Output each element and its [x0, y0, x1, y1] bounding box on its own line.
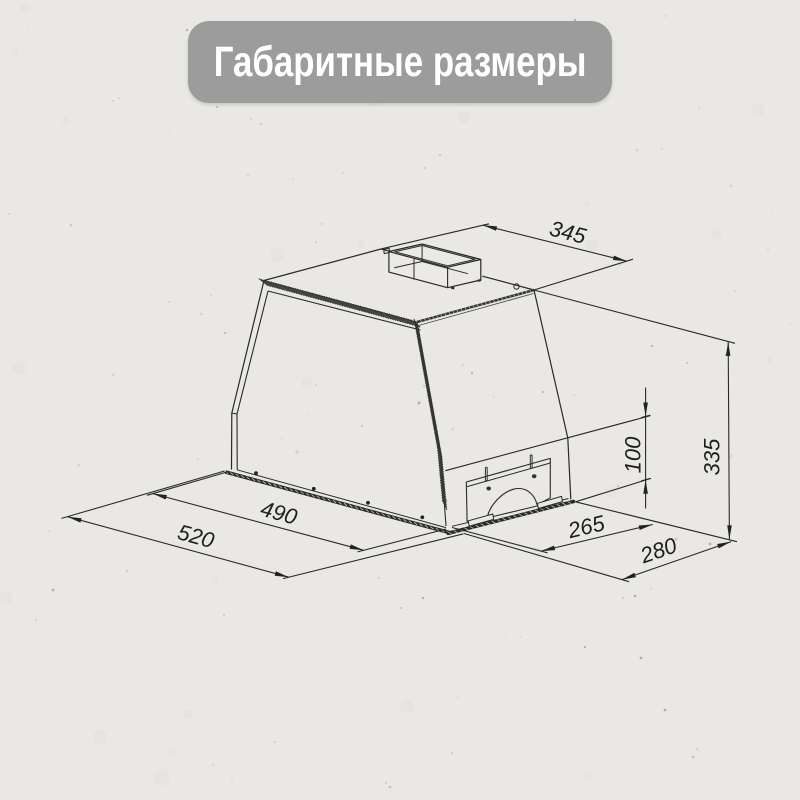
svg-text:280: 280 — [636, 532, 681, 568]
svg-text:345: 345 — [547, 216, 589, 249]
svg-text:490: 490 — [258, 496, 301, 530]
svg-text:335: 335 — [700, 438, 725, 475]
svg-text:265: 265 — [565, 510, 608, 543]
svg-text:100: 100 — [621, 436, 646, 473]
